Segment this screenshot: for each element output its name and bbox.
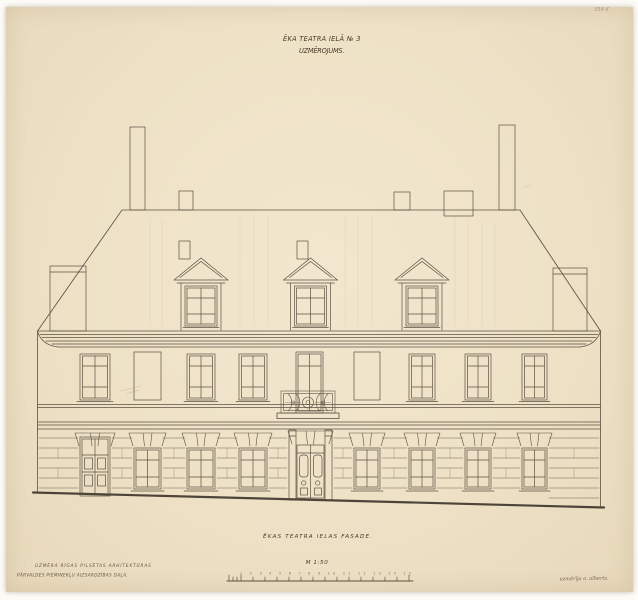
roof <box>38 210 601 331</box>
ground-window <box>184 448 218 491</box>
ground-window <box>406 448 438 491</box>
page-subtitle: UZMĒROJUMS. <box>299 46 345 55</box>
page-title: ĒKA TEATRA IELĀ № 3 <box>283 34 361 43</box>
ground-window <box>236 448 270 491</box>
upper-window <box>184 354 218 402</box>
ridge-vent-left <box>179 191 193 210</box>
chimney-right <box>499 125 515 210</box>
roof-vent <box>179 241 308 259</box>
facade-elevation-drawing: 354 Ķ ĒKA TEATRA IELĀ № 3 UZMĒROJUMS. ĒK… <box>0 0 638 600</box>
upper-window <box>462 354 494 402</box>
eaves-chimney-right <box>553 268 587 331</box>
ridge-stack-wide <box>444 191 473 216</box>
ground-window <box>519 448 550 491</box>
entrance-door <box>289 430 332 500</box>
string-course <box>38 405 601 430</box>
ridge-vent-right <box>394 192 410 210</box>
upper-window <box>519 354 550 402</box>
ground-window <box>351 448 383 491</box>
corner-note: 354 Ķ <box>594 7 610 13</box>
dormer <box>174 258 228 330</box>
side-door <box>80 437 110 496</box>
blind-window <box>354 352 380 400</box>
cornice <box>38 331 601 347</box>
dormer <box>395 258 449 330</box>
window-lintels <box>75 431 552 446</box>
dormer <box>284 258 338 330</box>
drawing-caption: ĒKAS TEATRA IELAS FASADE. <box>263 533 373 540</box>
rustication <box>39 438 599 498</box>
upper-window <box>236 354 270 402</box>
ground-window <box>462 448 494 491</box>
scale-bar <box>227 575 413 581</box>
scale-label: M 1:50 <box>306 560 329 566</box>
upper-window <box>406 354 438 402</box>
eaves-chimney-left <box>50 266 86 331</box>
stamp-line-1: UZMĒRA RĪGAS PILSĒTAS ARHITEKTŪRAS <box>35 563 151 568</box>
chimney-left <box>130 127 145 210</box>
surveyor-signature: uzmērīja a. alberts. <box>559 576 609 583</box>
stamp-line-2: PĀRVALDES PIEMINEKĻU AIZSARDZĪBAS DAĻA. <box>17 573 128 578</box>
upper-window <box>77 354 113 402</box>
facade-corner <box>38 331 601 507</box>
ground-window <box>131 448 164 491</box>
blind-window <box>134 352 161 400</box>
scale-tick-numbers: 1 2 3 4 5 6 7 8 9 10 11 12 13 14 15 <box>240 572 411 576</box>
